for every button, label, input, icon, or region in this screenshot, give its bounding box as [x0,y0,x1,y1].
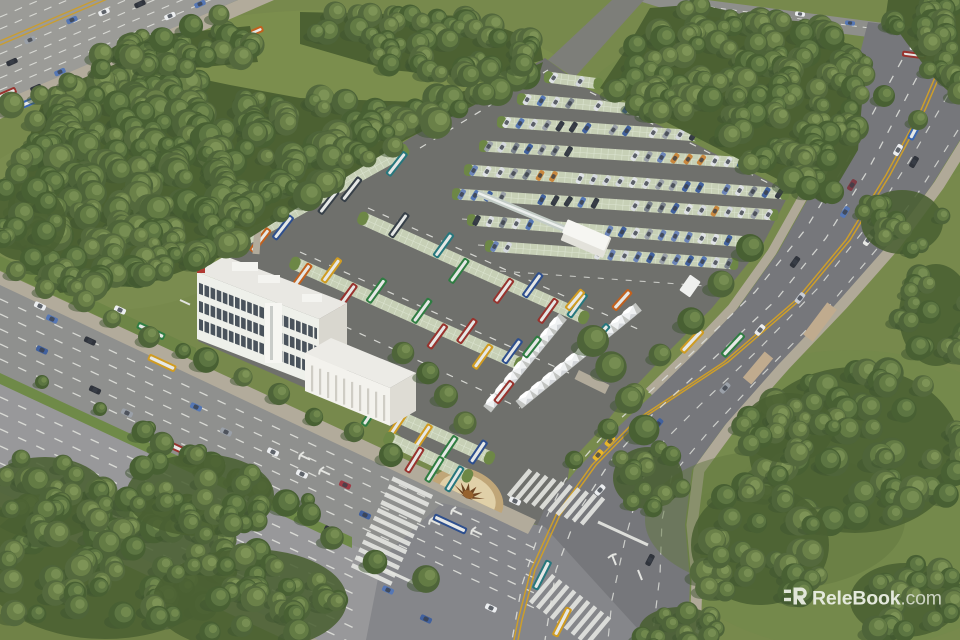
svg-text:ReleBook.com: ReleBook.com [812,588,942,610]
